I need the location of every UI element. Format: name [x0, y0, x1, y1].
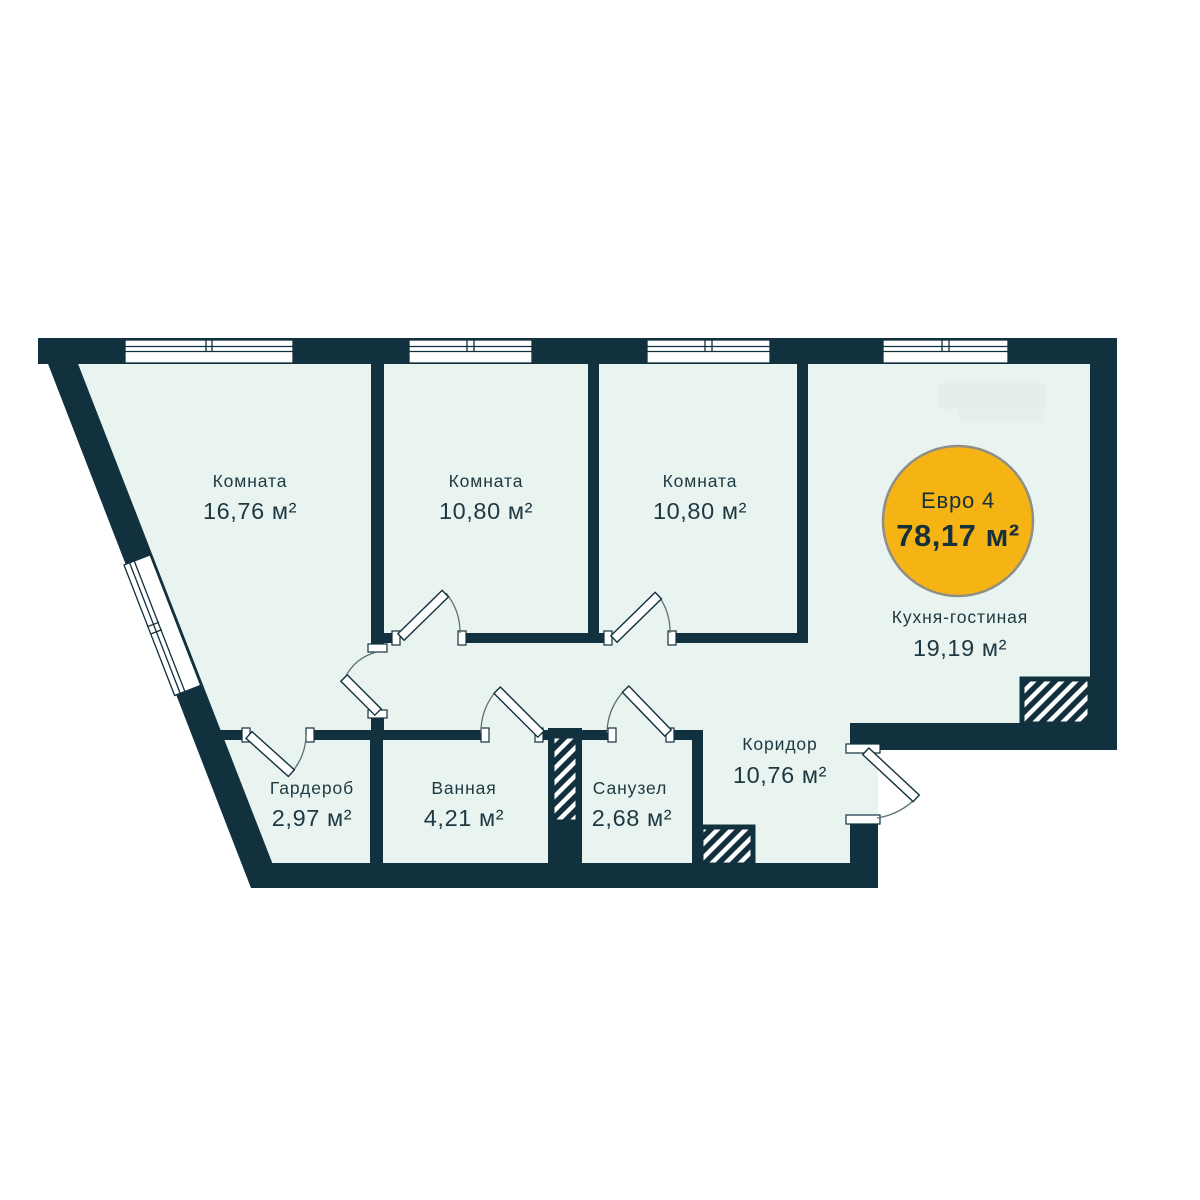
badge-total-area: 78,17 м²: [896, 518, 1019, 553]
badge-plan-type: Евро 4: [921, 488, 995, 513]
label-garderob: Гардероб 2,97 м²: [270, 778, 354, 831]
window-room2: [409, 340, 532, 363]
wall-room2-room3: [588, 364, 599, 643]
floor-plan-svg: Комната 16,76 м² Комната 10,80 м² Комнат…: [0, 0, 1200, 1200]
room2-area: 10,80 м²: [439, 498, 533, 524]
wall-garderob-vannaya: [370, 740, 383, 863]
label-sanuzel: Санузел 2,68 м²: [592, 778, 672, 831]
window-room1: [125, 340, 293, 363]
window-room3: [647, 340, 770, 363]
garderob-area: 2,97 м²: [272, 805, 352, 831]
garderob-name: Гардероб: [270, 778, 354, 798]
label-room2: Комната 10,80 м²: [439, 471, 533, 524]
vannaya-name: Ванная: [431, 778, 496, 798]
corridor-area: 10,76 м²: [733, 762, 827, 788]
sanuzel-area: 2,68 м²: [592, 805, 672, 831]
wall-room3-kitchen: [797, 364, 808, 643]
wall-kitchen-bottom: [850, 723, 1117, 750]
label-room3: Комната 10,80 м²: [653, 471, 747, 524]
room3-name: Комната: [663, 471, 738, 491]
room1-area: 16,76 м²: [203, 498, 297, 524]
sanuzel-name: Санузел: [593, 778, 667, 798]
wall-room1-room2: [371, 364, 384, 652]
vent-shaft-kitchen: [1022, 679, 1090, 724]
door-arc-entrance: [877, 798, 916, 818]
label-vannaya: Ванная 4,21 м²: [424, 778, 504, 831]
wall-bottom: [251, 863, 878, 888]
label-room1: Комната 16,76 м²: [203, 471, 297, 524]
wall-right: [1090, 338, 1117, 750]
room3-area: 10,80 м²: [653, 498, 747, 524]
vannaya-area: 4,21 м²: [424, 805, 504, 831]
area-badge: Евро 4 78,17 м²: [883, 446, 1033, 596]
floor-plan-page: Комната 16,76 м² Комната 10,80 м² Комнат…: [0, 0, 1200, 1200]
window-kitchen: [883, 340, 1008, 363]
room1-name: Комната: [213, 471, 288, 491]
vent-shaft-corridor: [701, 827, 753, 865]
kitchen-name: Кухня-гостиная: [892, 607, 1028, 627]
corridor-name: Коридор: [742, 734, 817, 754]
kitchen-area: 19,19 м²: [913, 635, 1007, 661]
room2-name: Комната: [449, 471, 524, 491]
vent-shaft-bathroom: [553, 737, 577, 821]
